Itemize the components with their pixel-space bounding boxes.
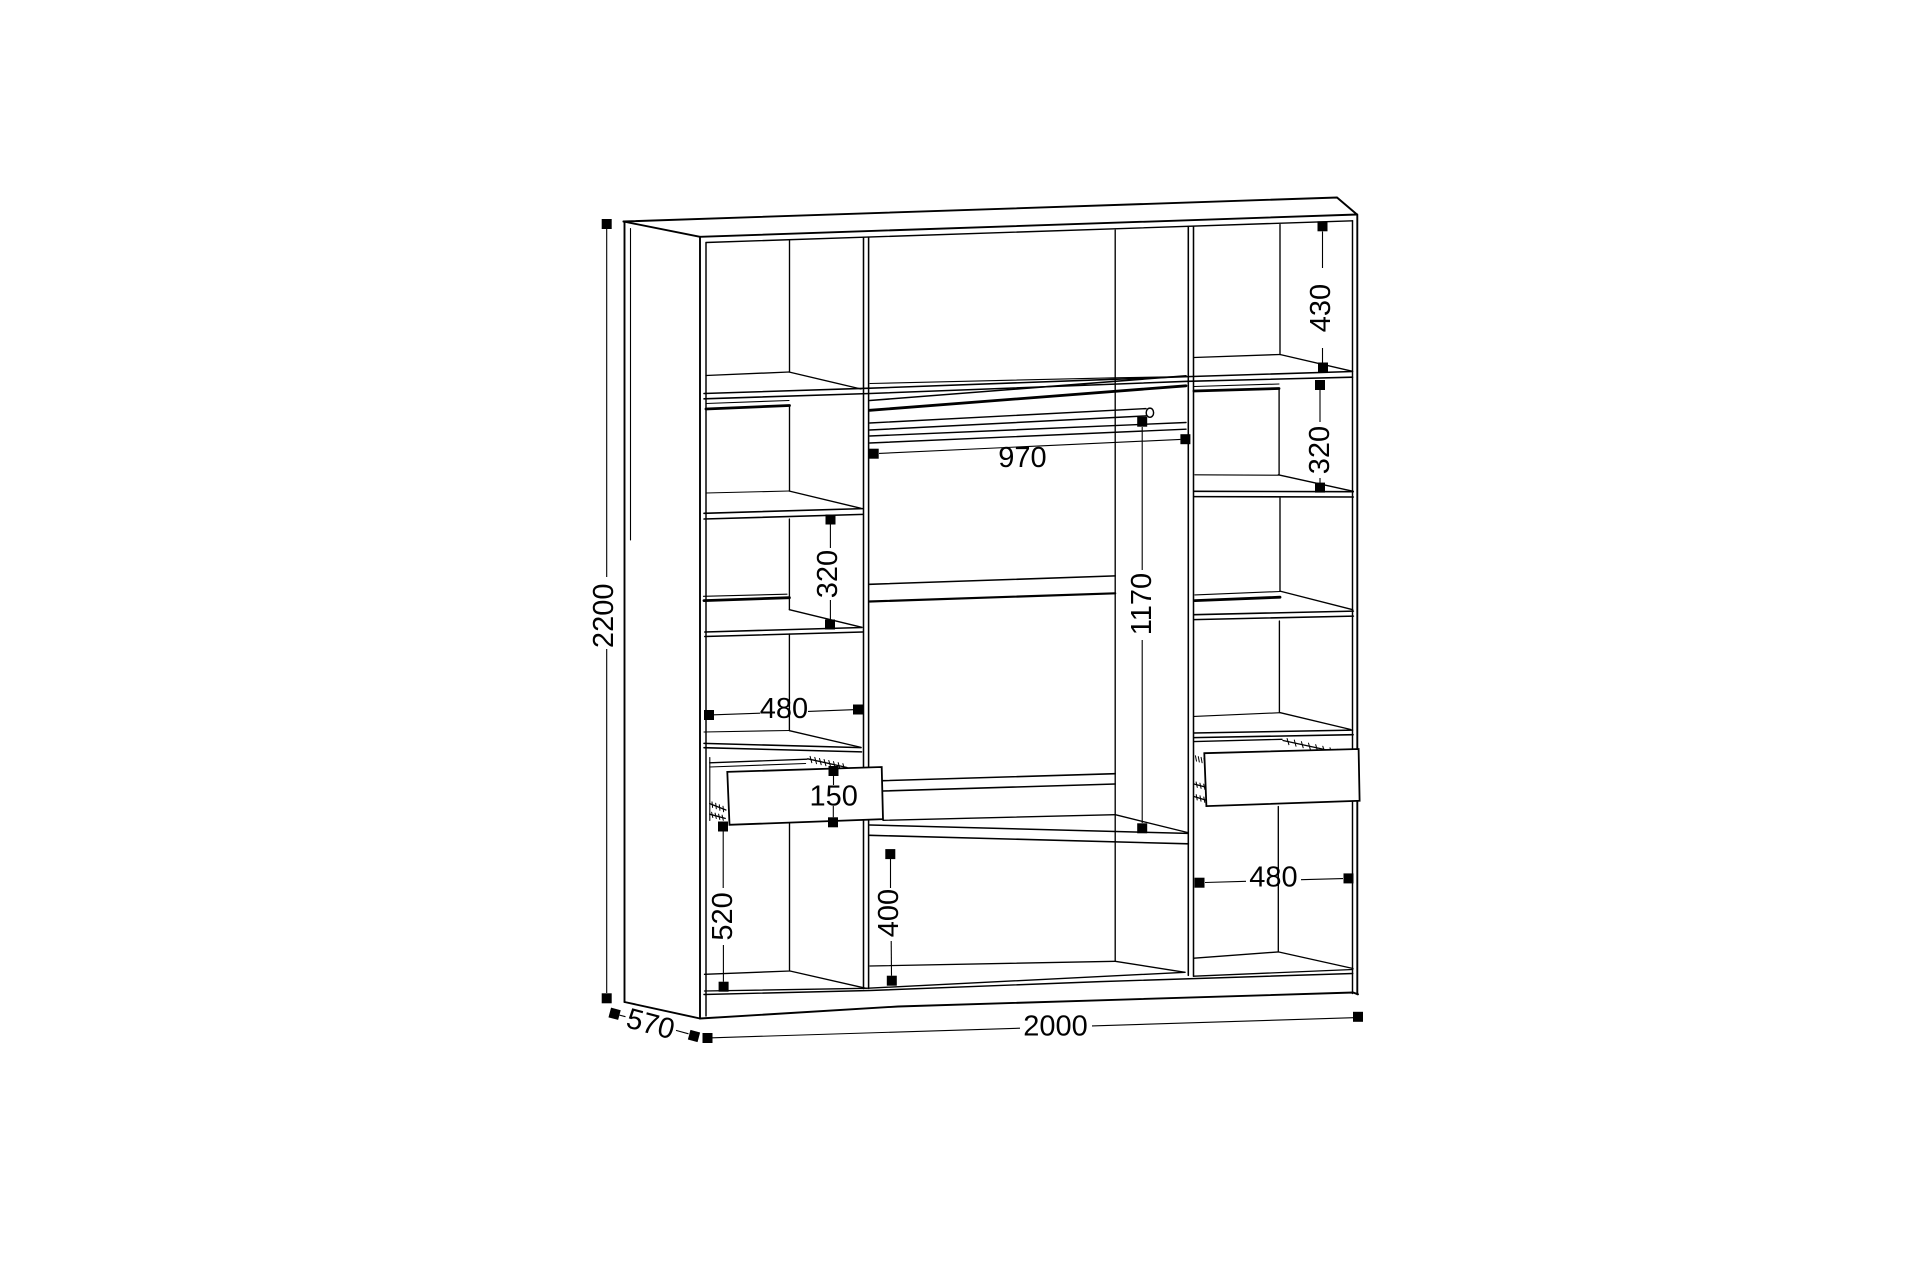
svg-text:970: 970: [998, 442, 1046, 474]
svg-text:430: 430: [1305, 284, 1337, 332]
svg-text:480: 480: [1249, 862, 1297, 894]
svg-text:2000: 2000: [1023, 1011, 1088, 1043]
svg-text:2200: 2200: [588, 584, 620, 649]
svg-text:320: 320: [1304, 426, 1336, 474]
svg-text:480: 480: [760, 693, 808, 725]
svg-text:400: 400: [873, 889, 905, 937]
svg-text:1170: 1170: [1126, 573, 1158, 635]
svg-text:150: 150: [810, 780, 858, 812]
svg-text:320: 320: [812, 550, 844, 598]
svg-text:520: 520: [707, 892, 739, 940]
